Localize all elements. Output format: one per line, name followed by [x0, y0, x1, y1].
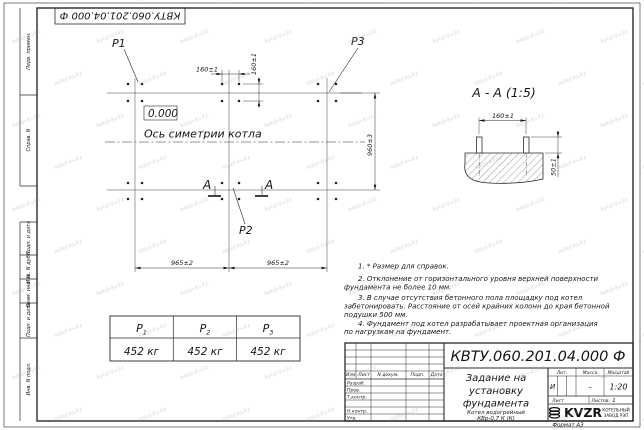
anchor-bolt-dot: [141, 83, 144, 86]
load-table: P1 P2 P3 452 кг 452 кг 452 кг: [110, 316, 300, 361]
dim-965-right: 965±2: [267, 259, 289, 267]
section-cut-letter-left: А: [202, 178, 211, 192]
section-cut-letter-right: А: [264, 178, 273, 192]
doc-number-top: КВТУ.060.201.04.000 Ф: [59, 10, 180, 21]
logo-text: KVZR: [564, 405, 602, 420]
anchor-bolt-dot: [141, 100, 144, 103]
rev-header-ndoc: N докум.: [377, 372, 398, 378]
note-line: по нагрузкам на фундамент.: [344, 328, 451, 336]
margin-label-sprav: Справ. N: [26, 128, 32, 151]
role-utv: Утв.: [347, 416, 357, 422]
doc-title-line: Задание на: [466, 373, 527, 384]
doc-title-line: фундамента: [463, 399, 529, 410]
section-dim-50: 50±1: [550, 158, 558, 176]
drawing-sheet: Перв. примен. Справ. N Подп. и дата Инв.…: [0, 0, 644, 430]
load-label-p3: P3: [351, 35, 365, 48]
company-logo: KVZR КОТЕЛЬНЫЙ ЗАВОД РЭП: [550, 405, 630, 420]
doc-title-line: установку: [468, 386, 524, 397]
symmetry-axis-label: Ось симетрии котла: [144, 128, 262, 141]
rev-header-data: Дата: [430, 372, 443, 378]
anchor-bolt-dot: [335, 182, 338, 185]
anchor-bolt-dot: [127, 198, 130, 201]
load-table-value: 452 кг: [250, 346, 286, 358]
format-label: Формат А3: [552, 423, 584, 429]
note-line: подушки 500 мм.: [344, 311, 408, 319]
spring-icon: [550, 408, 560, 418]
plan-view: P1 P3 P2 160±1 160±1 960±3 965±2 965±2: [105, 35, 380, 272]
sheets-label: Листов: [590, 398, 608, 404]
load-label-p2: P2: [239, 224, 253, 237]
role-nkontr: Н.контр.: [347, 409, 368, 415]
load-table-value: 452 кг: [124, 346, 160, 358]
dim-160-horizontal: 160±1: [196, 66, 218, 74]
notes: 1. * Размер для справок. 2. Отклонение о…: [344, 263, 610, 337]
anchor-bolt-left: [477, 137, 483, 153]
anchor-bolt-dot: [317, 182, 320, 185]
note-line: забетонировать. Расстояние от осей крайн…: [344, 303, 610, 311]
note-line: 3. В случае отсутствия бетонного пола пл…: [358, 294, 583, 302]
section-detail: А - А (1:5) 160±1 50±1: [465, 85, 562, 183]
load-table-header: P3: [263, 322, 274, 337]
margin-label-perv: Перв. примен.: [26, 32, 32, 70]
margin-label-vzam: Взам. инв. N: [26, 275, 32, 308]
note-line: фундамента не более 10 мм.: [344, 284, 452, 292]
anchor-bolt-dot: [221, 182, 224, 185]
company-name-line: КОТЕЛЬНЫЙ: [602, 408, 629, 413]
role-tkontr: Т.контр.: [347, 395, 367, 401]
scale-label: Масштаб: [608, 370, 630, 376]
rev-header-podp: Подп.: [411, 372, 425, 378]
role-prov: Пров.: [347, 388, 360, 394]
anchor-bolt-dot: [238, 198, 241, 201]
anchor-bolt-dot: [335, 198, 338, 201]
product-line: КВр-0,7 К (К): [477, 416, 515, 422]
section-title: А - А (1:5): [471, 85, 535, 100]
anchor-bolt-dot: [127, 182, 130, 185]
note-line: 2. Отклонение от горизонтального уровня …: [358, 275, 598, 283]
anchor-bolt-dot: [317, 100, 320, 103]
anchor-bolt-dot: [221, 198, 224, 201]
anchor-bolt-dot: [221, 100, 224, 103]
anchor-bolt-dot: [141, 198, 144, 201]
margin-label-inv-podl: Инв. N подл.: [26, 362, 32, 395]
title-block: КВТУ.060.201.04.000 Ф Задание на установ…: [345, 343, 633, 422]
scale-value: 1:20: [610, 383, 628, 392]
doc-number: КВТУ.060.201.04.000 Ф: [451, 349, 626, 365]
load-table-header: P1: [136, 322, 147, 337]
note-line: 4. Фундамент под котел разрабатывает про…: [358, 320, 598, 328]
dim-160-vertical: 160±1: [250, 53, 258, 75]
anchor-bolt-dot: [127, 100, 130, 103]
anchor-bolt-dot: [221, 83, 224, 86]
level-mark: 0.000: [148, 108, 178, 120]
company-name-line: ЗАВОД РЭП: [604, 413, 629, 418]
mass-value: –: [588, 383, 592, 391]
anchor-bolt-dot: [238, 100, 241, 103]
anchor-bolt-dot: [238, 182, 241, 185]
mass-label: Масса: [583, 370, 598, 376]
anchor-bolt-dot: [127, 83, 130, 86]
anchor-bolt-dot: [335, 100, 338, 103]
dim-965-left: 965±2: [171, 259, 193, 267]
sheet-label: Лист: [551, 398, 564, 404]
anchor-bolt-right: [524, 137, 530, 153]
margin-label-podp-1: Подп. и дата: [26, 221, 32, 255]
section-dim-160: 160±1: [492, 112, 514, 120]
rev-header-izm: Изм. Лист: [346, 372, 370, 378]
load-label-p1: P1: [112, 37, 126, 50]
margin-label-podp-2: Подп. и дата: [26, 303, 32, 337]
lit-label: Лит.: [556, 370, 568, 376]
role-razrab: Разраб.: [347, 381, 365, 387]
dim-960: 960±3: [366, 134, 374, 156]
load-table-value: 452 кг: [187, 346, 223, 358]
anchor-bolt-dot: [141, 182, 144, 185]
lit-value: И: [550, 383, 556, 391]
anchor-bolt-dot: [238, 83, 241, 86]
drawing-canvas: Перв. примен. Справ. N Подп. и дата Инв.…: [0, 0, 644, 430]
sheets-value: 1: [612, 398, 616, 404]
anchor-bolt-dot: [317, 83, 320, 86]
load-table-header: P2: [200, 322, 211, 337]
foundation-pad: [465, 153, 543, 183]
anchor-bolt-dot: [317, 198, 320, 201]
anchor-bolts: [127, 83, 338, 201]
note-line: 1. * Размер для справок.: [358, 263, 449, 271]
